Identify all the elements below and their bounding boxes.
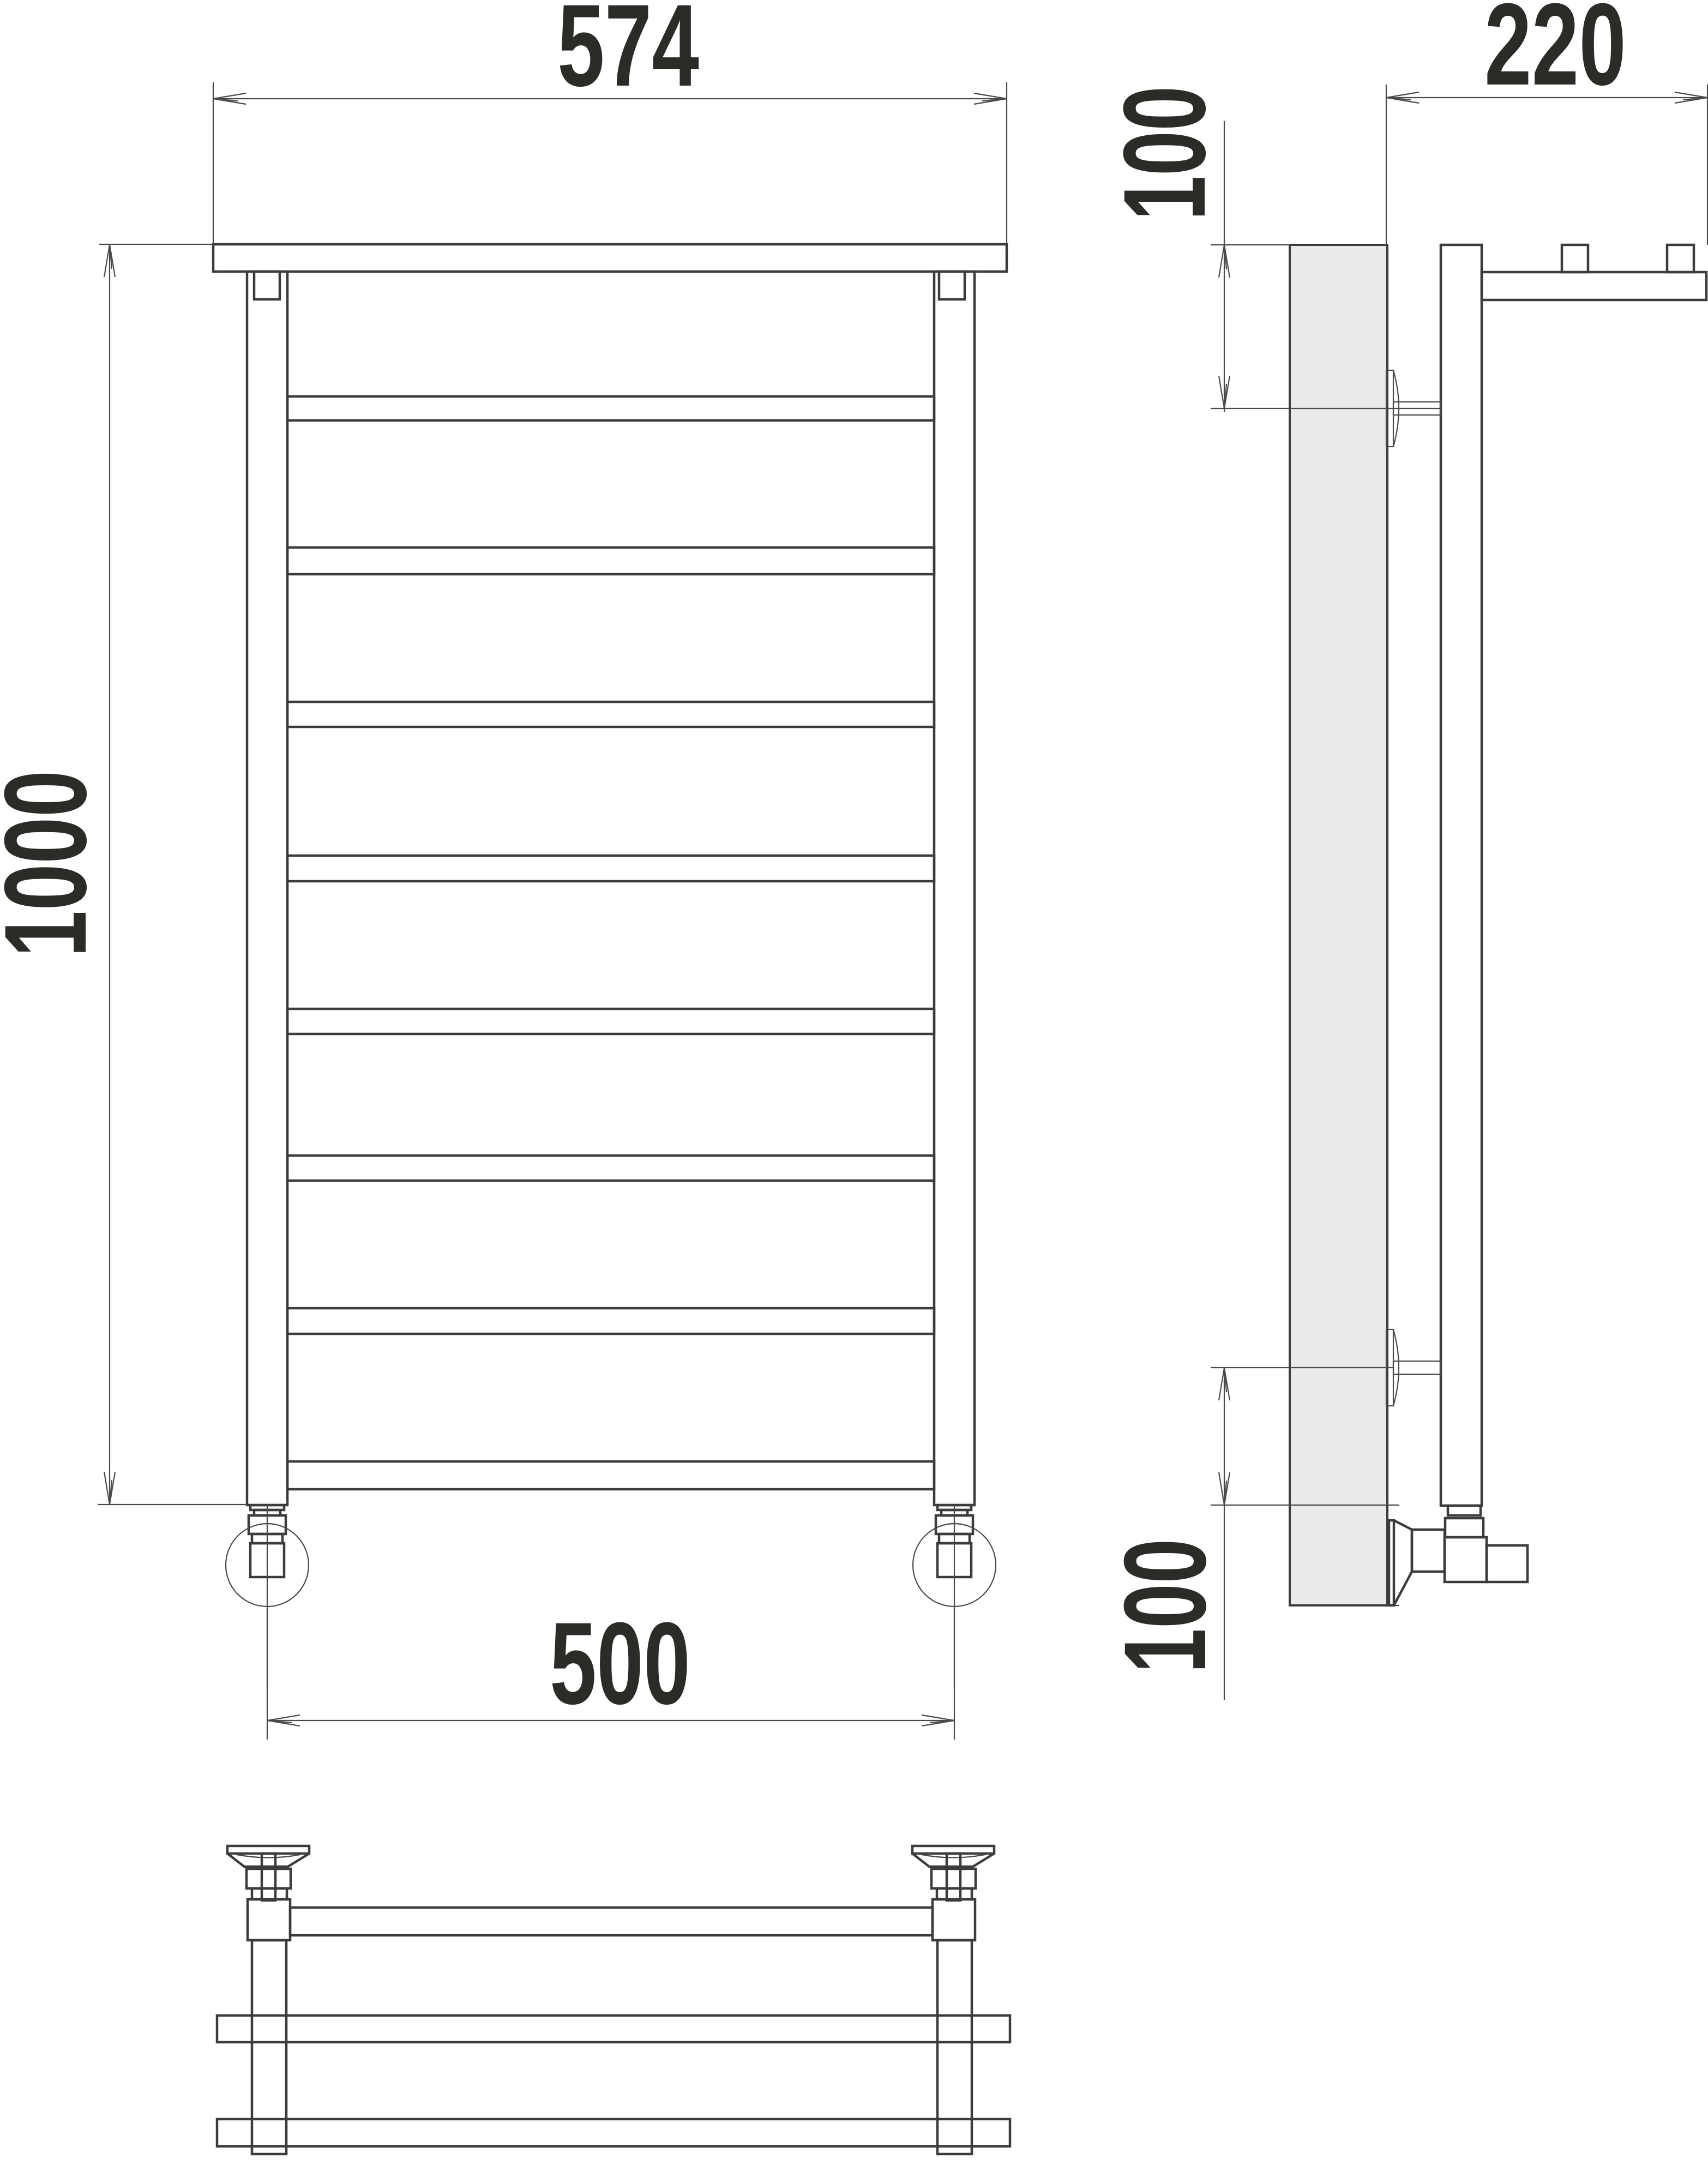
rung [287, 702, 934, 727]
collector-from-below [290, 1908, 933, 1935]
rung [287, 1156, 934, 1181]
valve-flange [1448, 1506, 1481, 1515]
dim-label-depth: 220 [1484, 0, 1626, 110]
right-shelf-hook [939, 272, 965, 299]
wall-bracket-bottom [1386, 1329, 1441, 1406]
valve-handle [1487, 1545, 1527, 1582]
left-post [247, 272, 287, 1505]
dim-label-overall-width: 574 [557, 0, 699, 111]
shelf-tab [1562, 245, 1588, 272]
dim-label-overall-height: 1000 [0, 771, 111, 958]
front-view [213, 244, 1007, 1688]
shelf-tab [1667, 245, 1694, 272]
dim-label-pipe-spacing: 500 [550, 1598, 690, 1729]
bracket-flange-arc [1393, 1329, 1399, 1406]
valve-cone [1394, 1520, 1412, 1605]
top-shelf [213, 244, 1007, 272]
rung [287, 1308, 934, 1334]
right-post [934, 272, 975, 1505]
valve-block [248, 1899, 290, 1940]
valve-block [933, 1899, 975, 1940]
dim-overall-height: 1000 [0, 244, 247, 1505]
dim-depth: 220 [1386, 0, 1707, 245]
dim-pipe-spacing: 500 [267, 1598, 954, 1740]
dim-top-offset: 100 [1099, 86, 1441, 412]
rung [287, 396, 934, 420]
rungs [287, 396, 934, 1334]
dim-overall-width: 574 [213, 0, 1007, 244]
wall-escutcheon [1389, 1520, 1394, 1605]
bottom-collector [287, 1461, 934, 1489]
valve-nut [931, 1869, 976, 1888]
rung [287, 856, 934, 881]
bottom-view [217, 1846, 1010, 2154]
drawing-page: 574 1000 500 220 [0, 0, 1708, 2166]
wall [1290, 245, 1387, 1605]
valve-union [1412, 1530, 1445, 1572]
valve-body [1445, 1537, 1487, 1582]
valve-stem [947, 1854, 960, 1900]
shelf-edge-strip [217, 2119, 1010, 2146]
valve-neck [252, 1888, 287, 1899]
side-post [1441, 245, 1482, 1506]
dimensions: 574 1000 500 220 [0, 0, 1707, 1740]
left-shelf-hook [254, 272, 280, 299]
bottom-left-valve [227, 1846, 309, 2154]
dim-label-top-offset: 100 [1099, 86, 1230, 221]
valve-nut [246, 1869, 291, 1888]
bracket-stem [1393, 1361, 1441, 1374]
rung [287, 547, 934, 574]
dim-label-bottom-offset: 100 [1100, 1539, 1230, 1674]
side-view [1290, 245, 1706, 1605]
bottom-right-valve [912, 1846, 994, 2154]
shelf-edge-strip [217, 2015, 1010, 2042]
valve-stem [262, 1854, 275, 1900]
side-valve-assembly [1389, 1506, 1527, 1605]
post-from-below [252, 1940, 286, 2154]
valve-neck [937, 1888, 972, 1899]
valve-nut [1445, 1518, 1483, 1537]
rung [287, 1009, 934, 1034]
shelf-arm [1482, 272, 1706, 300]
towel-rail-drawing: 574 1000 500 220 [0, 0, 1708, 2166]
post-from-below [937, 1940, 972, 2154]
